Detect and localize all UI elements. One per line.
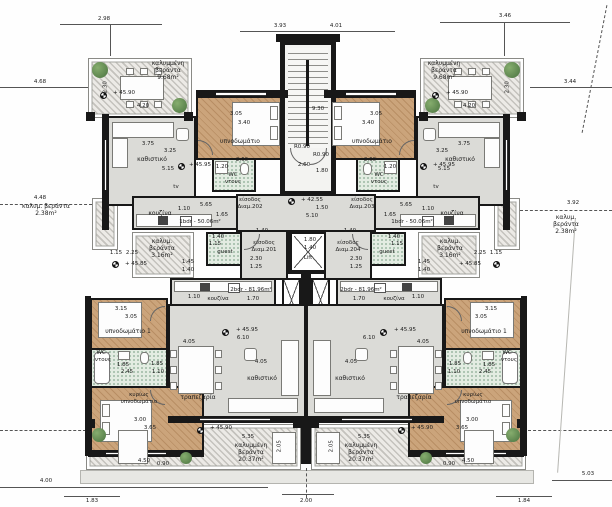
dim-line <box>0 87 88 88</box>
chair <box>390 382 397 390</box>
level-floor-204: + 45.95 <box>394 327 416 334</box>
label-veranda-side-left: καλυμ. βεράντα 2.38m² <box>22 203 70 217</box>
dim-left-2: 4.48 <box>34 195 46 202</box>
dim-bed-a-202: 3.05 <box>230 111 242 118</box>
dim-ent-c-201: 1.40 <box>256 228 268 235</box>
dim-liv-c-202: 5.15 <box>162 166 174 173</box>
dim-mb-a-201: 3.00 <box>134 417 146 424</box>
label-bedroom-203: υπνοδωμάτιο <box>352 138 392 145</box>
label-veranda-small-left: καλυμ. βεράντα 3.16m² <box>149 238 175 260</box>
label-wc2-204: WC - ντους <box>501 350 517 363</box>
dim-top-3: 4.01 <box>330 23 342 30</box>
column-1 <box>86 112 95 121</box>
window-living-203 <box>505 140 508 190</box>
dim-wc-b-203: 1.20 <box>384 164 396 171</box>
chair <box>170 366 177 374</box>
dim-hall-w: 1.50 <box>316 205 328 212</box>
dim-b1-b-201: 3.05 <box>125 314 137 321</box>
level-floor-203: + 45.95 <box>433 162 455 169</box>
label-kitchen-202: κουζίνα <box>148 210 171 217</box>
column-3 <box>419 112 428 121</box>
dim-line <box>110 25 111 56</box>
column-7 <box>310 419 319 428</box>
window-living-204 <box>342 418 412 421</box>
hob-203 <box>444 216 454 225</box>
dim-veranda-h-left: 2.30 <box>103 81 110 93</box>
dim-line-center <box>306 468 307 498</box>
dim-sv-b-right: 2.25 <box>474 250 486 257</box>
dim-left-1: 4.68 <box>34 79 46 86</box>
wall-stair-cap <box>276 34 340 42</box>
label-bedroom1-204: υπνοδωμάτιο 1 <box>461 328 507 335</box>
dim-veranda-w-right: 4.20 <box>463 103 475 110</box>
label-kitchen-204: κουζίνα <box>383 296 404 303</box>
dim-wc-a-203: 2.60 <box>364 157 376 164</box>
column-8 <box>517 419 526 428</box>
label-lift: Lift <box>304 255 313 262</box>
plant <box>420 452 432 464</box>
dim-wc2-c-204: 1.85 <box>449 361 461 368</box>
level-marker <box>222 329 229 336</box>
level-marker <box>420 163 427 170</box>
dim-line <box>282 494 334 495</box>
dim-line <box>0 487 268 488</box>
level-veranda-right: + 45.90 <box>446 90 468 97</box>
label-dining-201: τραπεζαρία <box>180 394 215 401</box>
chair <box>126 101 134 108</box>
dim-right-2: 3.92 <box>567 200 579 207</box>
dim-line <box>504 23 505 56</box>
chair <box>154 101 162 108</box>
dim-kit-c-202: 1.65 <box>216 212 228 219</box>
level-marker <box>493 261 500 268</box>
dim-ent-a-201: 2.30 <box>250 256 262 263</box>
window-bedroom-202 <box>216 92 266 96</box>
hob-202 <box>158 216 168 225</box>
dim-top-2: 3.93 <box>274 23 286 30</box>
dim-sv-d-right: 1.40 <box>418 267 430 274</box>
dim-right-1: 3.44 <box>564 79 576 86</box>
label-master-201: κυρίως υπνοδωμάτιο <box>121 392 158 405</box>
label-entrance-202: είσοδος Διαμ.202 <box>238 197 263 210</box>
column-2 <box>184 112 193 121</box>
dim-line <box>530 87 612 88</box>
dim-wc2-d-204: 1.10 <box>448 369 460 376</box>
label-veranda-side-right: καλυμ. βεράντα 2.38m² <box>543 214 589 236</box>
chair <box>454 101 462 108</box>
window-living-201 <box>200 418 270 421</box>
dim-guest-b-204: 1.15 <box>391 241 403 248</box>
chair <box>482 101 490 108</box>
dim-kit2-201: 1.10 <box>188 294 200 301</box>
dim-cor-204: 1.70 <box>353 296 365 303</box>
dim-vb-d-201: 0.90 <box>157 461 169 468</box>
label-entrance-203: είσοδος Διαμ.203 <box>350 197 375 210</box>
dim-kit-a-203: 1.10 <box>422 206 434 213</box>
toilet-201b <box>140 352 149 364</box>
window-living-202 <box>104 140 107 190</box>
armchair-202 <box>176 128 189 141</box>
chair <box>215 382 222 390</box>
chair <box>390 350 397 358</box>
dim-line <box>240 31 318 32</box>
plant <box>92 62 108 78</box>
hob-201 <box>200 283 210 291</box>
level-marker <box>380 329 387 336</box>
label-bedroom1-201: υπνοδωμάτιο 1 <box>105 328 151 335</box>
chair <box>435 350 442 358</box>
pillow <box>334 126 342 140</box>
chair <box>435 366 442 374</box>
sofa-203-arm <box>484 138 500 168</box>
dim-bottom-1: 1.83 <box>86 498 98 505</box>
dim-ent-a-204: 2.30 <box>350 256 362 263</box>
sofa-202-arm <box>112 138 128 168</box>
level-floor-202: + 45.95 <box>189 162 211 169</box>
level-floor-201: + 45.95 <box>236 327 258 334</box>
dim-line <box>64 496 120 497</box>
dim-ent-c-204: 1.40 <box>344 228 356 235</box>
chair <box>126 68 134 75</box>
sofa-203 <box>438 122 500 138</box>
dim-vb-b-left: 2.05 <box>277 440 284 452</box>
dim-line <box>552 480 612 481</box>
label-living-202: καθιστικό <box>137 156 167 163</box>
pillow <box>270 106 278 120</box>
dim-sv-d-left: 1.40 <box>182 267 194 274</box>
dim-wc2-d-201: 1.10 <box>152 369 164 376</box>
dim-sv-b-left: 2.25 <box>126 250 138 257</box>
level-entry: + 42.55 <box>301 197 323 204</box>
label-veranda-bottom-left: καλυμμένη βεράντα 20.37m² <box>235 442 268 464</box>
dim-wc2-a-204: 1.85 <box>483 362 495 369</box>
dim-guest-b-201: 1.15 <box>209 241 221 248</box>
dim-sv-c-right: 1.45 <box>418 259 430 266</box>
dim-bed-b-202: 3.40 <box>238 120 250 127</box>
property-line-right-upper <box>520 210 612 211</box>
label-living-204: καθιστικό <box>335 375 365 382</box>
label-tv-203: tv <box>433 184 438 191</box>
label-veranda-bottom-right: καλυμμένη βεράντα 20.37m² <box>345 442 378 464</box>
dim-wc-b-202: 1.20 <box>216 164 228 171</box>
dim-sv-a-right: 1.15 <box>490 250 502 257</box>
dim-b1-a-204: 3.15 <box>485 306 497 313</box>
dim-bed-a-203: 3.05 <box>370 111 382 118</box>
column-4 <box>517 112 526 121</box>
dim-kit-b-202: 5.65 <box>200 202 212 209</box>
level-marker <box>112 261 119 268</box>
chair <box>482 68 490 75</box>
window-bedroom-203 <box>346 92 396 96</box>
label-entrance-201: είσοδος Διαμ.201 <box>252 240 277 253</box>
veranda-seat <box>272 432 296 464</box>
label-entrance-204: είσοδος Διαμ.204 <box>336 240 361 253</box>
dim-guest-a-204: 1.40 <box>388 234 400 241</box>
label-veranda-top-right: καλυμμένη βεράντα 9.68m² <box>428 60 461 82</box>
dim-lv2-b-204: 6.10 <box>363 335 375 342</box>
property-line-top-right <box>582 5 608 133</box>
label-wc-203: WC ντους <box>371 172 387 185</box>
level-sv-left: + 45.85 <box>125 261 147 268</box>
floor-plan: 2.98 3.93 4.01 3.46 4.68 4.48 4.00 3.44 … <box>0 0 612 507</box>
dim-top-4: 3.46 <box>499 13 511 20</box>
dim-wc2-b-201: 2.45 <box>121 369 133 376</box>
level-marker <box>398 427 405 434</box>
dim-line <box>496 496 552 497</box>
dim-vb-b-right: 2.05 <box>329 440 336 452</box>
plant <box>92 428 106 442</box>
level-marker <box>178 163 185 170</box>
level-marker <box>432 92 439 99</box>
pillow <box>502 404 510 417</box>
dim-lv2-b-201: 6.10 <box>237 335 249 342</box>
pillow <box>334 106 342 120</box>
armchair-203 <box>423 128 436 141</box>
label-unit-204: 2bdr - 81.96m² <box>340 287 382 294</box>
dim-lv2-a-204: 4.05 <box>345 359 357 366</box>
dim-line <box>318 31 395 32</box>
dim-ent-b-204: 1.25 <box>350 264 362 271</box>
dim-mb-b-204: 3.65 <box>456 425 468 432</box>
label-kitchen-203: κουζίνα <box>440 210 463 217</box>
dim-vb-a-left: 5.35 <box>242 434 254 441</box>
sofa-201 <box>281 340 299 396</box>
chair <box>170 350 177 358</box>
dim-veranda-w-left: 4.20 <box>137 103 149 110</box>
label-guest-201: guest <box>217 249 232 256</box>
label-veranda-small-right: καλυμ. βεράντα 3.16m² <box>437 238 463 260</box>
label-unit-201: 2bdr - 81.96m² <box>230 287 272 294</box>
dim-dn-a-201: 4.05 <box>183 339 195 346</box>
dim-dn-a-204: 4.05 <box>417 339 429 346</box>
dim-vb-c-201: 4.50 <box>138 458 150 465</box>
dim-b1-a-201: 3.15 <box>115 306 127 313</box>
dim-liv-a-203: 3.75 <box>458 141 470 148</box>
chair <box>170 382 177 390</box>
dim-lift-w: 1.80 <box>304 237 316 244</box>
dim-stair-r2: R0.90 <box>313 152 329 159</box>
chair <box>435 382 442 390</box>
dim-bottom-2: 2.00 <box>300 498 312 505</box>
dim-kit-c-203: 1.65 <box>384 212 396 219</box>
label-bedroom-202: υπνοδωμάτιο <box>220 138 260 145</box>
dim-bottom-3: 1.84 <box>518 498 530 505</box>
plant <box>172 98 187 113</box>
label-tv-202: tv <box>173 184 178 191</box>
property-line-right-lower <box>528 430 612 431</box>
property-line-left-lower <box>0 430 86 431</box>
site-edge-right <box>557 218 576 472</box>
label-living-201: καθιστικό <box>247 375 277 382</box>
dim-b1-b-204: 3.05 <box>475 314 487 321</box>
level-vb-left: + 45.90 <box>210 425 232 432</box>
hob-204 <box>402 283 412 291</box>
dim-cor-201: 1.70 <box>247 296 259 303</box>
dining-table-201 <box>178 346 214 394</box>
sofa-201-b <box>228 398 298 413</box>
sofa-204-b <box>314 398 384 413</box>
level-vb-right: + 45.90 <box>411 425 433 432</box>
dim-top-1: 2.98 <box>98 16 110 23</box>
dim-lift-d: 1.40 <box>304 245 316 252</box>
dim-line <box>440 22 570 23</box>
dim-vb-a-right: 5.35 <box>358 434 370 441</box>
label-unit-202: 1bdr - 50.06m² <box>179 219 221 226</box>
level-sv-right: + 45.85 <box>459 261 481 268</box>
label-unit-203: 1bdr - 50.06m² <box>391 219 433 226</box>
pillow <box>270 126 278 140</box>
walkway <box>80 470 534 484</box>
basin-201 <box>118 351 130 360</box>
dim-veranda-h-right: 2.30 <box>505 81 512 93</box>
dim-stair-d1: 2.60 <box>298 162 310 169</box>
label-wc-202: WC ντους <box>225 172 241 185</box>
dim-right-3: 5.03 <box>582 471 594 478</box>
column-6 <box>293 419 302 428</box>
chair <box>390 366 397 374</box>
dim-vb-d-204: 0.90 <box>443 461 455 468</box>
dim-kit2-204: 1.10 <box>412 294 424 301</box>
label-master-204: κυρίως υπνοδωμάτιο <box>455 392 492 405</box>
dim-line <box>60 24 162 25</box>
sofa-202 <box>112 122 174 138</box>
dim-wc2-b-204: 2.45 <box>479 369 491 376</box>
toilet-204b <box>463 352 472 364</box>
dim-left-3: 4.00 <box>40 478 52 485</box>
plant <box>180 452 192 464</box>
dim-guest-a-201: 1.40 <box>212 234 224 241</box>
level-veranda-left: + 45.90 <box>113 90 135 97</box>
dim-sv-a-left: 1.15 <box>110 250 122 257</box>
label-dining-204: τραπεζαρία <box>396 394 431 401</box>
level-marker <box>197 427 204 434</box>
label-kitchen-201: κουζίνα <box>207 296 228 303</box>
dim-ent-b-201: 1.25 <box>250 264 262 271</box>
level-marker <box>288 198 295 205</box>
dim-wc2-c-201: 1.85 <box>151 361 163 368</box>
stair-spine-wall <box>306 60 309 146</box>
column-5 <box>86 419 95 428</box>
chair <box>140 68 148 75</box>
chair <box>468 68 476 75</box>
dim-vb-c-204: 4.50 <box>462 458 474 465</box>
chair <box>215 350 222 358</box>
label-guest-204: guest <box>379 249 394 256</box>
dining-table-204 <box>398 346 434 394</box>
label-veranda-top-left: καλυμμένη βεράντα 9.68m² <box>152 60 185 82</box>
toilet-202 <box>240 163 249 175</box>
dim-stair-d2: 1.80 <box>316 168 328 175</box>
dim-mb-a-204: 3.00 <box>466 417 478 424</box>
dim-mb-b-201: 3.65 <box>144 425 156 432</box>
dim-sv-c-left: 1.45 <box>182 259 194 266</box>
dim-liv-b-202: 3.25 <box>164 148 176 155</box>
sofa-204 <box>313 340 331 396</box>
dim-hall-l: 5.10 <box>306 213 318 220</box>
dim-bed-b-203: 3.40 <box>362 120 374 127</box>
dim-stair-r1: R0.90 <box>294 144 310 151</box>
dim-stair-width: 9.30 <box>312 106 324 113</box>
dim-kit-b-203: 5.65 <box>400 202 412 209</box>
basin-204 <box>482 351 494 360</box>
dim-kit-a-202: 1.10 <box>178 206 190 213</box>
chair <box>215 366 222 374</box>
plant <box>504 62 520 78</box>
dim-wc-a-202: 2.60 <box>236 157 248 164</box>
plant <box>506 428 520 442</box>
dim-lv2-a-201: 4.05 <box>255 359 267 366</box>
dim-liv-a-202: 3.75 <box>142 141 154 148</box>
pillow <box>102 404 110 417</box>
plant <box>425 98 440 113</box>
dim-liv-b-203: 3.25 <box>436 148 448 155</box>
dim-wc2-a-201: 1.85 <box>117 362 129 369</box>
label-wc2-201: WC - ντους <box>95 350 111 363</box>
wall-outer-left-lower <box>85 296 91 456</box>
wall-outer-right-lower <box>521 296 527 456</box>
